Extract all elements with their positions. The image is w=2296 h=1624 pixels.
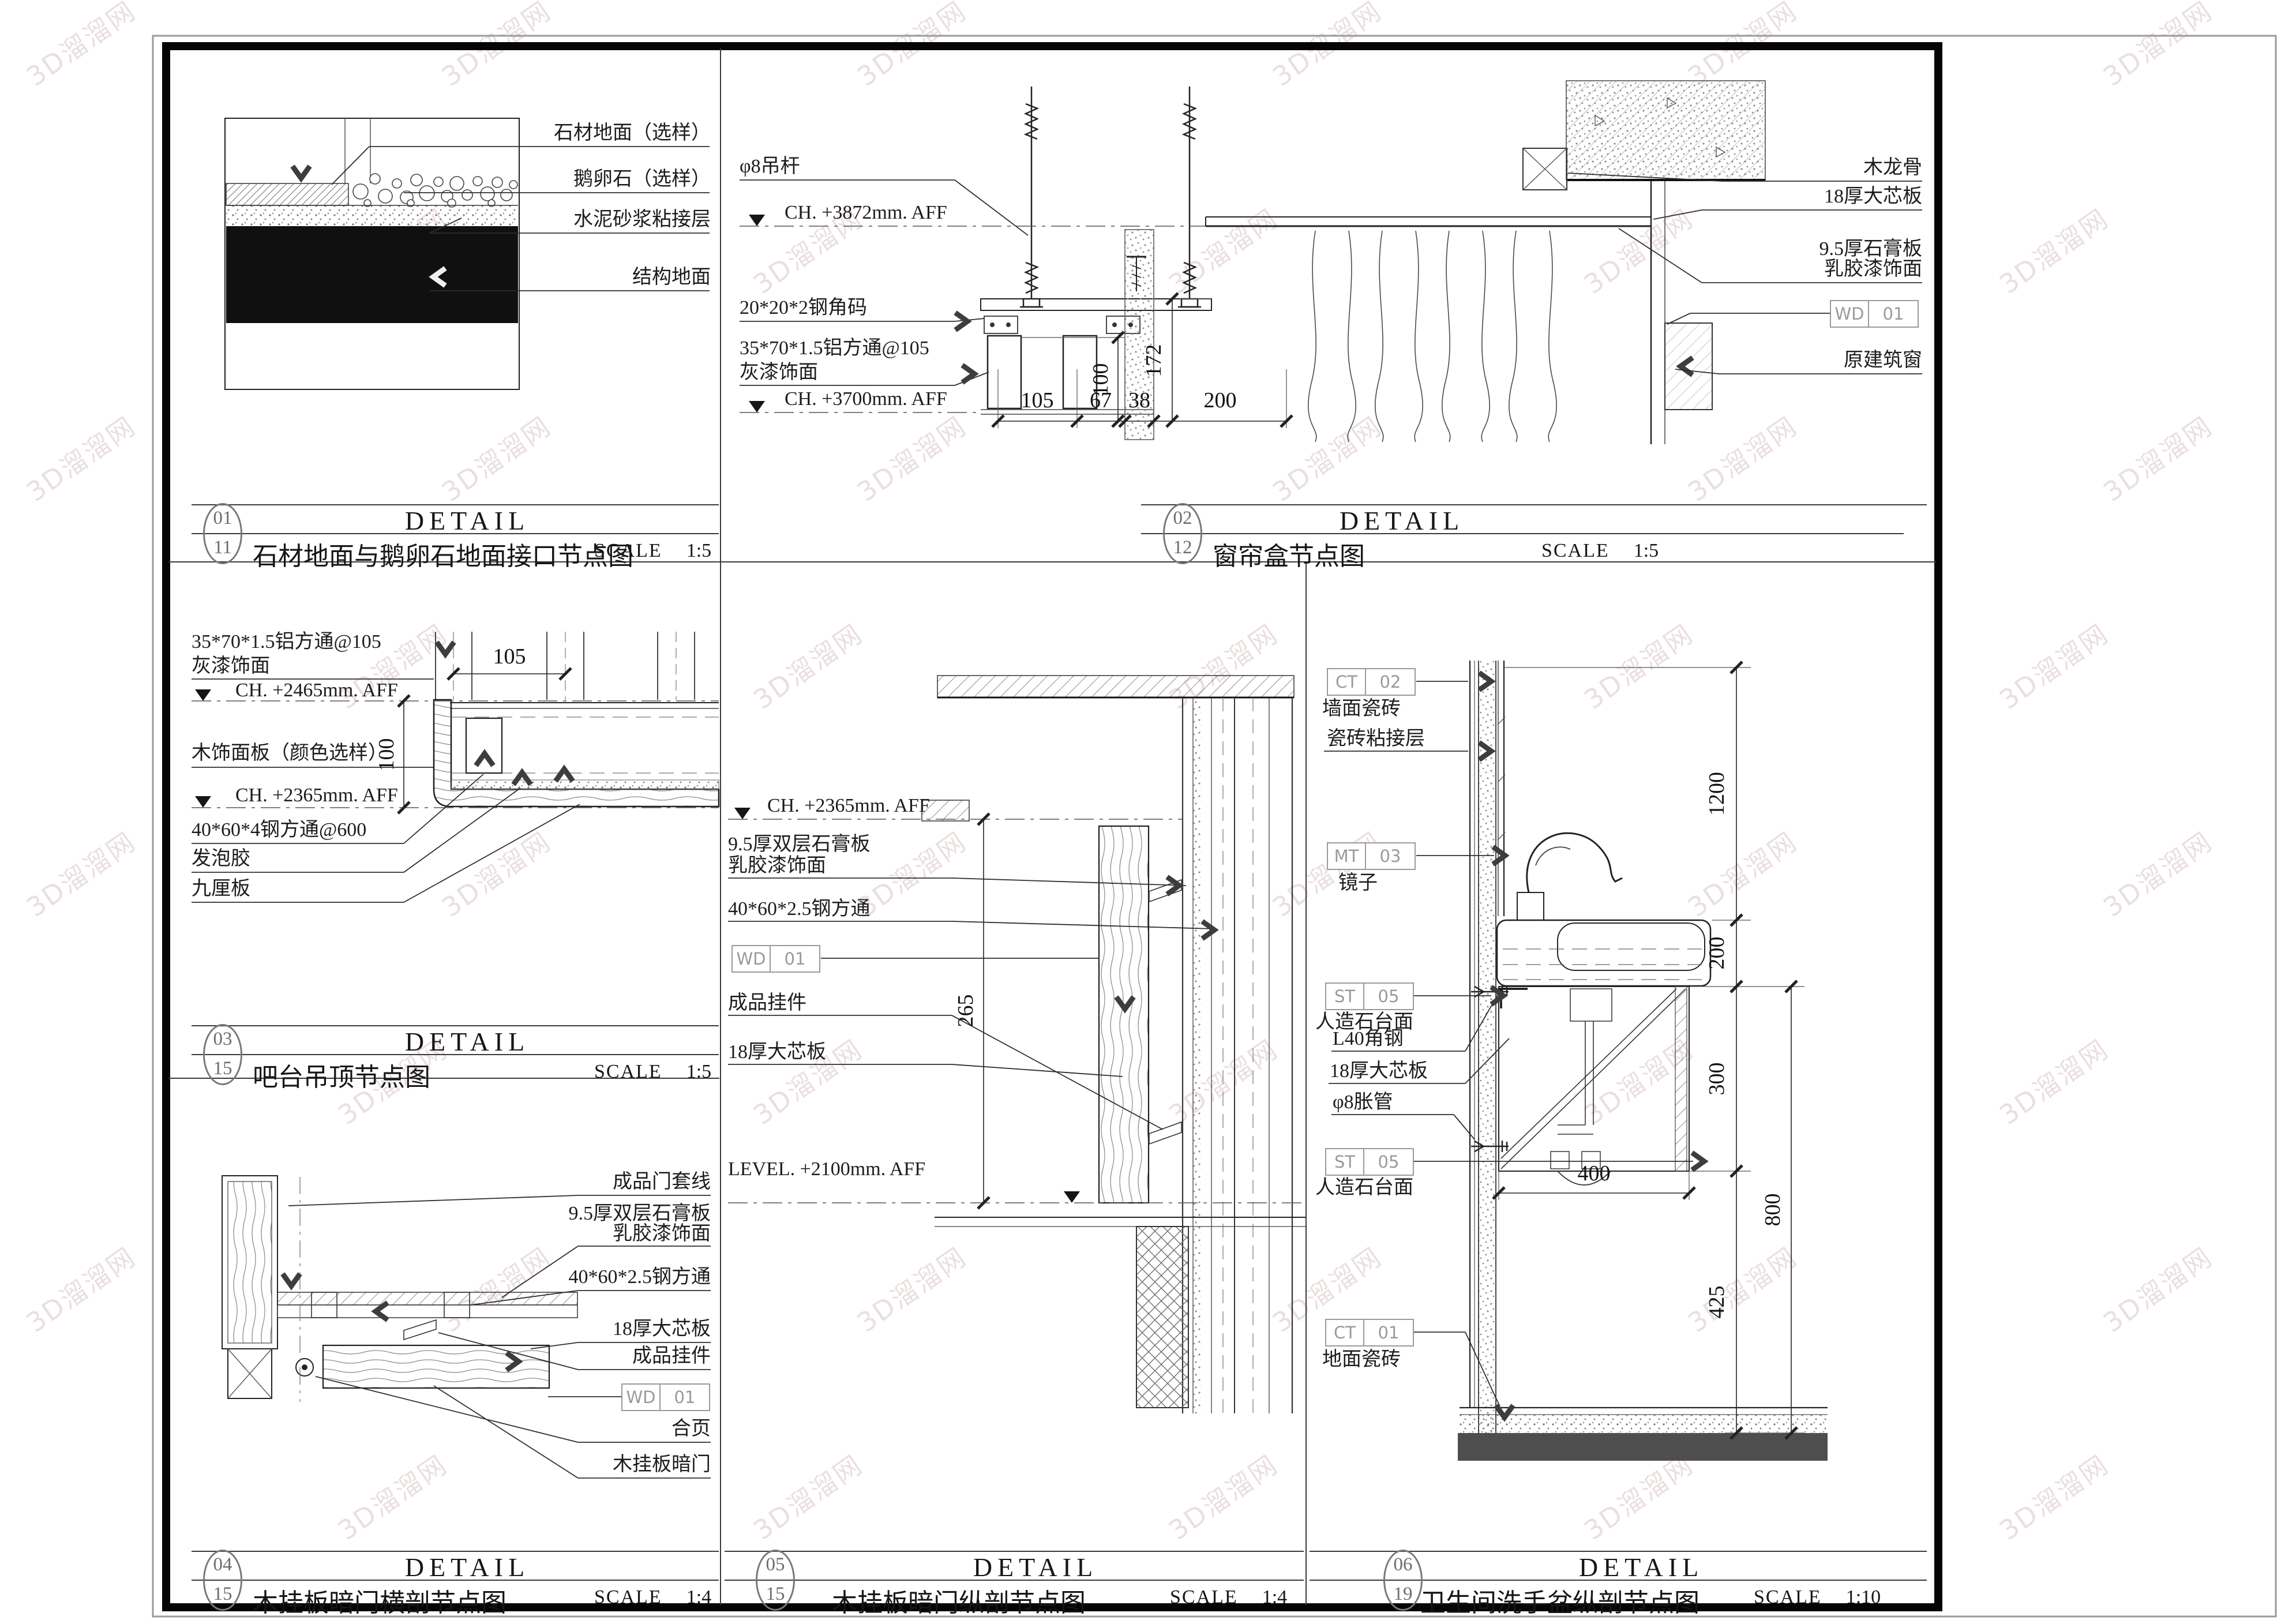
svg-text:200: 200 bbox=[1204, 388, 1237, 412]
tag-number: 01 bbox=[1869, 301, 1918, 327]
p02-label-angle: 20*20*2钢角码 bbox=[740, 297, 867, 319]
detail-number: 01 bbox=[213, 505, 232, 529]
detail-title: 石材地面与鹅卵石地面接口节点图 bbox=[253, 535, 633, 572]
drawing-sheet: 3D溜溜网3D溜溜网3D溜溜网3D溜溜网3D溜溜网3D溜溜网3D溜溜网3D溜溜网… bbox=[0, 0, 2296, 1624]
p04-label-steel: 40*60*2.5钢方通 bbox=[569, 1266, 711, 1288]
p04-tag-wd01: WD 01 bbox=[621, 1383, 710, 1411]
p04-label-board: 18厚大芯板 bbox=[613, 1318, 711, 1340]
p03-label-board: 九厘板 bbox=[192, 878, 250, 900]
detail-word: DETAIL bbox=[1520, 1552, 1762, 1582]
p05-label-board: 18厚大芯板 bbox=[728, 1041, 826, 1063]
detail-number: 03 bbox=[213, 1026, 232, 1050]
p01-label-structure: 结构地面 bbox=[632, 267, 711, 288]
svg-text:105: 105 bbox=[1021, 388, 1054, 412]
p03-label-foam: 发泡胶 bbox=[192, 848, 250, 870]
p02-label-alu1: 35*70*1.5铝方通@105 bbox=[740, 337, 929, 359]
tag-number: 02 bbox=[1366, 669, 1415, 695]
p03-label-steel: 40*60*4钢方通@600 bbox=[192, 819, 366, 841]
p06-label-counter2: 人造石台面 bbox=[1315, 1177, 1413, 1199]
p02-label-alu2: 灰漆饰面 bbox=[740, 362, 818, 384]
tag-number: 01 bbox=[771, 946, 819, 972]
rule bbox=[1141, 504, 1927, 505]
detail-title: 卫生间洗手盆纵剖节点图 bbox=[1420, 1582, 1700, 1619]
detail-scale: SCALE1:4 bbox=[1170, 1587, 1287, 1608]
sheet-number: 15 bbox=[213, 1584, 232, 1609]
p06-tag-mt03: MT 03 bbox=[1327, 842, 1416, 870]
p03-label-ch1: CH. +2465mm. AFF bbox=[235, 680, 398, 702]
svg-text:105: 105 bbox=[493, 644, 526, 669]
detail-title: 窗帘盒节点图 bbox=[1213, 535, 1365, 572]
p06-tag-st05-2: ST 05 bbox=[1325, 1148, 1414, 1176]
tag-code: MT bbox=[1328, 843, 1366, 869]
tag-number: 05 bbox=[1364, 984, 1413, 1009]
tag-code: ST bbox=[1326, 1149, 1364, 1175]
p02-label-board: 18厚大芯板 bbox=[1824, 186, 1922, 208]
detail-number-circle: 01 11 bbox=[203, 503, 242, 564]
tag-number: 03 bbox=[1366, 843, 1415, 869]
p02-label-window: 原建筑窗 bbox=[1844, 350, 1922, 372]
svg-text:300: 300 bbox=[1705, 1063, 1729, 1096]
p05-label-ch: CH. +2365mm. AFF bbox=[767, 795, 930, 817]
detail-01-drawing bbox=[225, 118, 710, 389]
svg-text:100: 100 bbox=[1089, 363, 1113, 396]
detail-scale: SCALE1:4 bbox=[594, 1587, 711, 1608]
p05-label-level: LEVEL. +2100mm. AFF bbox=[728, 1158, 925, 1180]
detail-word: DETAIL bbox=[346, 1552, 588, 1582]
p05-label-gyp2: 乳胶漆饰面 bbox=[728, 855, 826, 877]
p05-tag-wd01: WD 01 bbox=[731, 945, 820, 973]
tag-code: ST bbox=[1326, 984, 1364, 1009]
detail-number-circle: 06 19 bbox=[1383, 1550, 1423, 1611]
detail-number-circle: 05 15 bbox=[756, 1550, 795, 1611]
sheet-number: 12 bbox=[1173, 537, 1192, 562]
p05-label-gyp1: 9.5厚双层石膏板 bbox=[728, 834, 871, 856]
tag-number: 05 bbox=[1364, 1149, 1413, 1175]
p02-tag-wd01: WD 01 bbox=[1830, 300, 1919, 328]
detail-word: DETAIL bbox=[346, 1026, 588, 1057]
detail-word: DETAIL bbox=[1281, 505, 1523, 536]
p01-label-stone: 石材地面（选样） bbox=[554, 122, 711, 144]
detail-word: DETAIL bbox=[346, 505, 588, 536]
p02-label-gyp2: 乳胶漆饰面 bbox=[1824, 258, 1922, 280]
detail-scale: SCALE1:10 bbox=[1754, 1587, 1881, 1608]
detail-title: 吧台吊顶节点图 bbox=[253, 1056, 430, 1093]
p06-tag-st05: ST 05 bbox=[1325, 982, 1414, 1010]
detail-word: DETAIL bbox=[914, 1552, 1157, 1582]
svg-text:400: 400 bbox=[1578, 1161, 1611, 1186]
tag-code: WD bbox=[1831, 301, 1869, 327]
p05-label-steel: 40*60*2.5钢方通 bbox=[728, 898, 871, 920]
p06-label-adhesive: 瓷砖粘接层 bbox=[1327, 728, 1425, 750]
p06-tag-ct02: CT 02 bbox=[1327, 668, 1416, 696]
p04-label-casing: 成品门套线 bbox=[613, 1171, 711, 1193]
detail-number: 06 bbox=[1394, 1551, 1413, 1576]
svg-text:265: 265 bbox=[954, 995, 978, 1027]
p06-label-mirror: 镜子 bbox=[1338, 872, 1378, 894]
p03-label-ch2: CH. +2365mm. AFF bbox=[235, 785, 398, 807]
p06-label-floor-tile: 地面瓷砖 bbox=[1322, 1349, 1401, 1371]
detail-number: 04 bbox=[213, 1551, 232, 1576]
cad-linework: 105 67 38 200 100 172 105 bbox=[0, 0, 2296, 1624]
p06-tag-ct01: CT 01 bbox=[1325, 1319, 1414, 1347]
p04-label-hanger: 成品挂件 bbox=[632, 1345, 711, 1367]
p01-label-pebble: 鹅卵石（选样） bbox=[573, 168, 711, 190]
detail-scale: SCALE1:5 bbox=[594, 1061, 711, 1083]
p06-label-angle: L40角钢 bbox=[1333, 1028, 1404, 1050]
detail-number-circle: 02 12 bbox=[1163, 503, 1202, 564]
p02-label-wood: 木龙骨 bbox=[1863, 157, 1922, 179]
sheet-number: 15 bbox=[766, 1584, 785, 1609]
detail-title: 木挂板暗门横剖节点图 bbox=[253, 1582, 507, 1619]
detail-scale: SCALE1:5 bbox=[594, 540, 711, 562]
tag-number: 01 bbox=[661, 1385, 709, 1410]
detail-scale: SCALE1:5 bbox=[1541, 540, 1659, 562]
p04-label-hinge: 合页 bbox=[671, 1418, 711, 1440]
p06-label-wall-tile: 墙面瓷砖 bbox=[1322, 698, 1401, 720]
svg-text:200: 200 bbox=[1705, 937, 1729, 970]
p06-label-anchor: φ8胀管 bbox=[1333, 1092, 1393, 1113]
p03-label-panel: 木饰面板（颜色选样） bbox=[192, 742, 388, 764]
sheet-number: 19 bbox=[1394, 1584, 1413, 1609]
tag-code: WD bbox=[733, 946, 771, 972]
p04-label-door: 木挂板暗门 bbox=[613, 1454, 711, 1476]
p01-label-mortar: 水泥砂浆粘接层 bbox=[573, 209, 711, 231]
sheet-number: 11 bbox=[213, 537, 232, 562]
tag-code: WD bbox=[622, 1385, 661, 1410]
detail-number-circle: 03 15 bbox=[203, 1024, 242, 1085]
svg-text:800: 800 bbox=[1761, 1194, 1785, 1227]
detail-title: 木挂板暗门纵剖节点图 bbox=[832, 1582, 1086, 1619]
svg-text:172: 172 bbox=[1142, 344, 1166, 377]
p02-label-gyp1: 9.5厚石膏板 bbox=[1819, 238, 1923, 260]
p06-label-board: 18厚大芯板 bbox=[1330, 1060, 1428, 1082]
p04-label-gyp2: 乳胶漆饰面 bbox=[613, 1223, 711, 1245]
p05-label-hanger: 成品挂件 bbox=[728, 992, 806, 1014]
tag-code: CT bbox=[1328, 669, 1366, 695]
svg-text:1200: 1200 bbox=[1705, 772, 1729, 816]
p02-label-rod: φ8吊杆 bbox=[740, 156, 800, 178]
svg-text:38: 38 bbox=[1128, 388, 1150, 412]
detail-03-drawing: 105 100 bbox=[192, 632, 719, 902]
sheet-number: 15 bbox=[213, 1058, 232, 1083]
tag-code: CT bbox=[1326, 1320, 1364, 1345]
detail-number: 05 bbox=[766, 1551, 785, 1576]
detail-number-circle: 04 15 bbox=[203, 1550, 242, 1611]
p03-label-alu1: 35*70*1.5铝方通@105 bbox=[192, 631, 381, 653]
p02-label-ch-bot: CH. +3700mm. AFF bbox=[785, 388, 947, 410]
svg-text:425: 425 bbox=[1705, 1286, 1729, 1319]
detail-number: 02 bbox=[1173, 505, 1192, 529]
tag-number: 01 bbox=[1364, 1320, 1413, 1345]
p02-label-ch-top: CH. +3872mm. AFF bbox=[785, 202, 947, 224]
p03-label-alu2: 灰漆饰面 bbox=[192, 655, 270, 677]
p04-label-gyp1: 9.5厚双层石膏板 bbox=[569, 1203, 711, 1225]
